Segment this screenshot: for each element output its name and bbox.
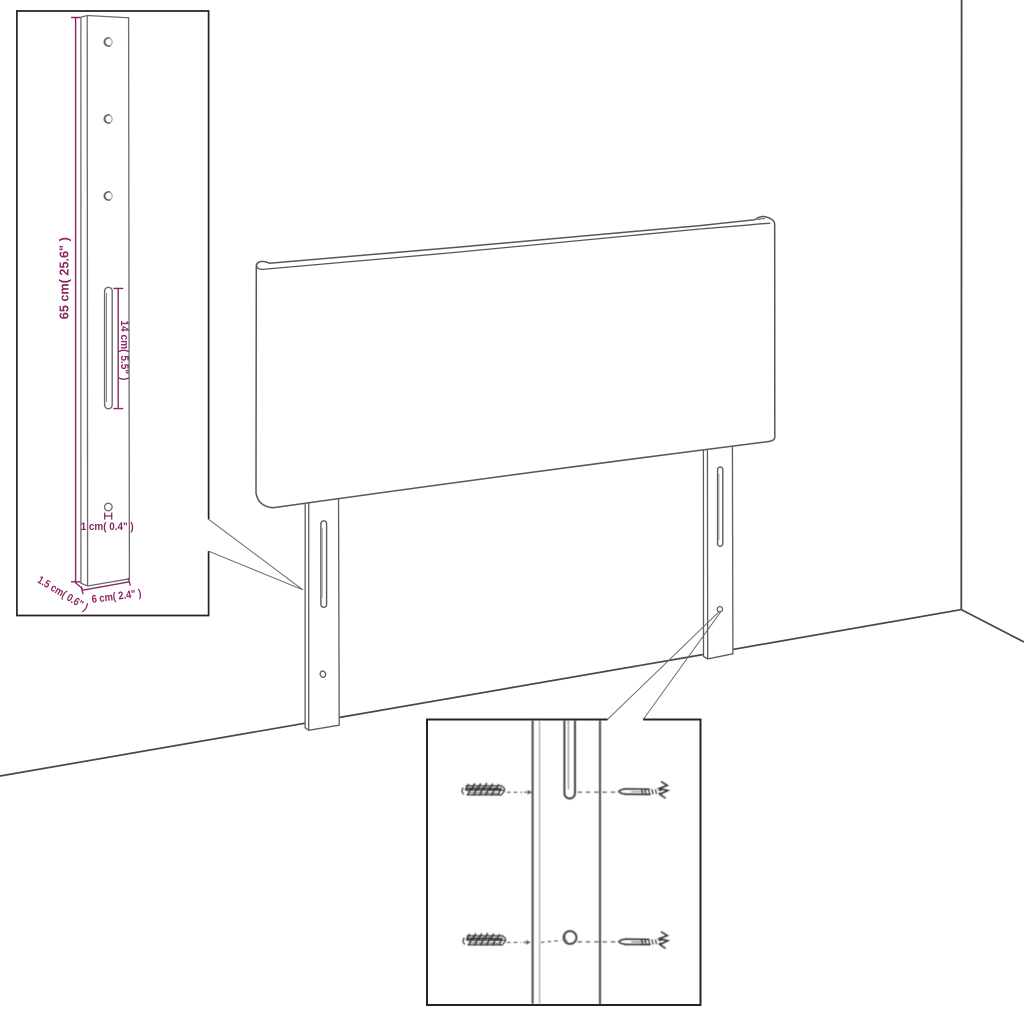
svg-text:65 cm( 25.6" ): 65 cm( 25.6" ) <box>58 237 72 319</box>
svg-text:14 cm( 5.5" ): 14 cm( 5.5" ) <box>118 320 130 380</box>
svg-text:1 cm( 0.4" ): 1 cm( 0.4" ) <box>81 521 134 533</box>
